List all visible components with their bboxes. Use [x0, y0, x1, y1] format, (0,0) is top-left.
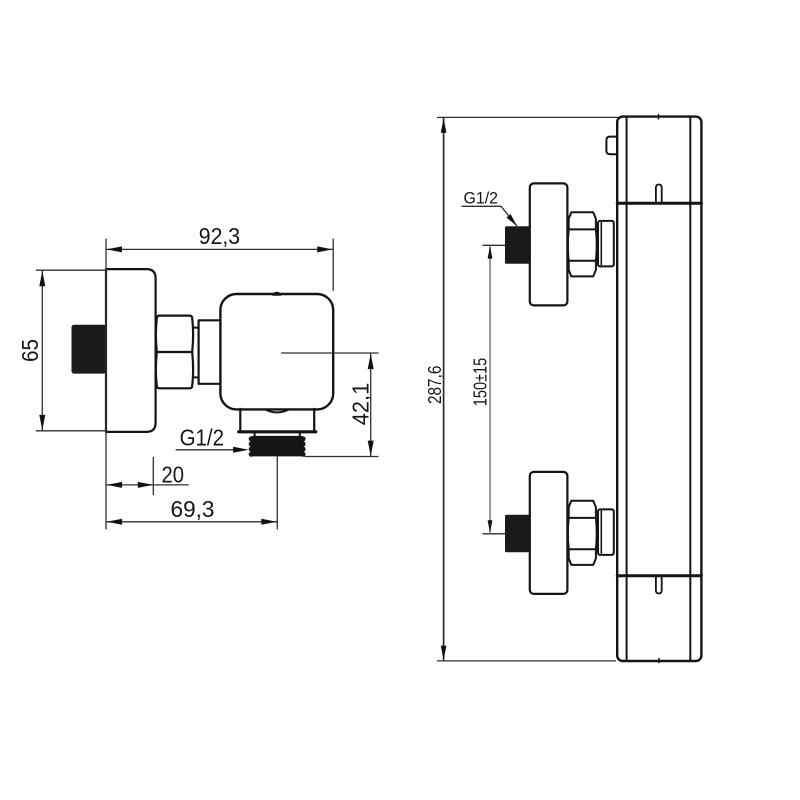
svg-text:G1/2: G1/2 [464, 189, 499, 207]
svg-text:150±15: 150±15 [470, 358, 491, 407]
svg-text:69,3: 69,3 [171, 496, 215, 522]
svg-text:287,6: 287,6 [424, 366, 445, 405]
svg-text:65: 65 [17, 339, 43, 362]
svg-text:20: 20 [162, 461, 185, 487]
svg-text:92,3: 92,3 [199, 223, 240, 249]
svg-text:42,1: 42,1 [348, 383, 374, 426]
svg-text:G1/2: G1/2 [180, 424, 224, 450]
